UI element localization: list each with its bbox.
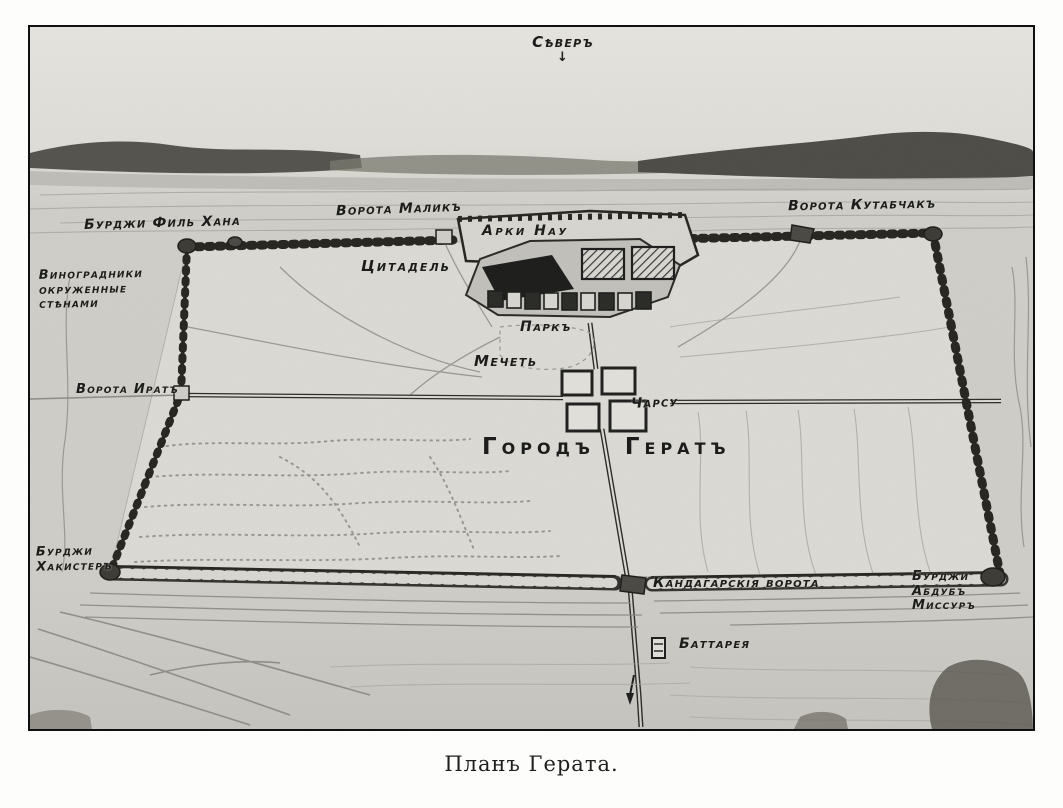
- north-label: Сѣверъ: [498, 34, 628, 51]
- map-frame: Сѣверъ ↓ Бурджи Филь Хана Виноградники о…: [28, 25, 1035, 731]
- vineyards-line3: стѣнами: [39, 296, 144, 312]
- label-irat-gate: Ворота Иратъ: [76, 383, 179, 398]
- label-charsu: Чарсу: [631, 395, 679, 412]
- label-kandahar-gate: Кандагарскія ворота: [653, 576, 820, 592]
- abdub-line2: Абдубъ: [912, 585, 976, 600]
- label-park: Паркъ: [520, 320, 572, 336]
- map-caption: Планъ Герата.: [0, 752, 1063, 776]
- engraved-map-artwork: [30, 27, 1033, 729]
- label-arki-nau: Арки Нау: [482, 224, 569, 240]
- city-name-word1: Городъ: [482, 435, 595, 461]
- herat-plan-page: Сѣверъ ↓ Бурджи Филь Хана Виноградники о…: [0, 0, 1063, 808]
- label-vineyards: Виноградники окруженные стѣнами: [39, 267, 144, 312]
- north-arrow-icon: ↓: [498, 51, 628, 66]
- paper-grain: [30, 27, 1033, 729]
- label-mosque: Мечеть: [474, 353, 538, 370]
- khakister-line2: Хакистеръ: [36, 559, 113, 575]
- city-name-word2: Гератъ: [625, 435, 731, 461]
- abdub-line3: Миссуръ: [912, 599, 976, 614]
- label-kutabchak-gate: Ворота Кутабчакъ: [788, 197, 937, 215]
- label-battery: Баттарея: [679, 637, 750, 653]
- abdub-line1: Бурджи: [912, 570, 976, 585]
- label-citadel: Цитадель: [361, 258, 451, 275]
- label-burji-abdub-missur: Бурджи Абдубъ Миссуръ: [912, 570, 976, 614]
- label-city-name: Городъ Гератъ: [482, 435, 731, 461]
- label-burji-khakister: Бурджи Хакистеръ: [36, 544, 113, 574]
